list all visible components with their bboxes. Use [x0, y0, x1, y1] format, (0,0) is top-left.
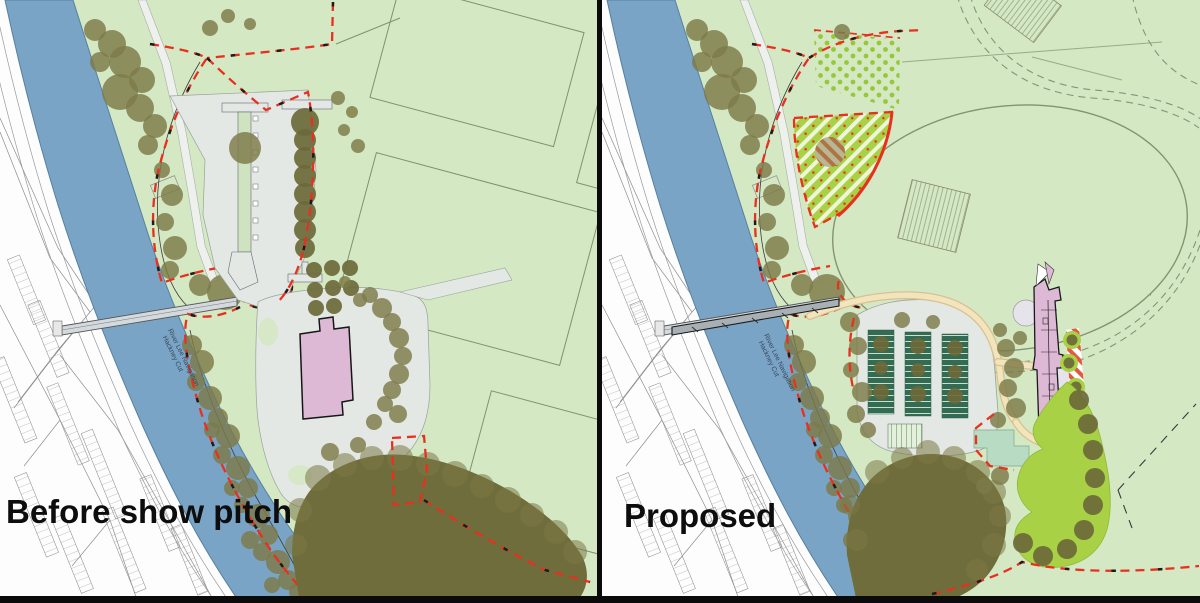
before-panel: River Lee Navigation Hackney Cut Before …: [0, 0, 689, 603]
proposed-caption: Proposed: [624, 497, 776, 534]
map-figure: River Lee Navigation Hackney Cut Before …: [0, 0, 1200, 603]
before-caption: Before show pitch: [6, 493, 292, 530]
before-after-map-comparison: River Lee Navigation Hackney Cut Before …: [0, 0, 1200, 603]
car-park-trees: [873, 336, 963, 404]
overflow-bays: [888, 424, 922, 448]
proposed-panel: River Lee Navigation Hackney Cut Propose…: [582, 0, 1200, 603]
